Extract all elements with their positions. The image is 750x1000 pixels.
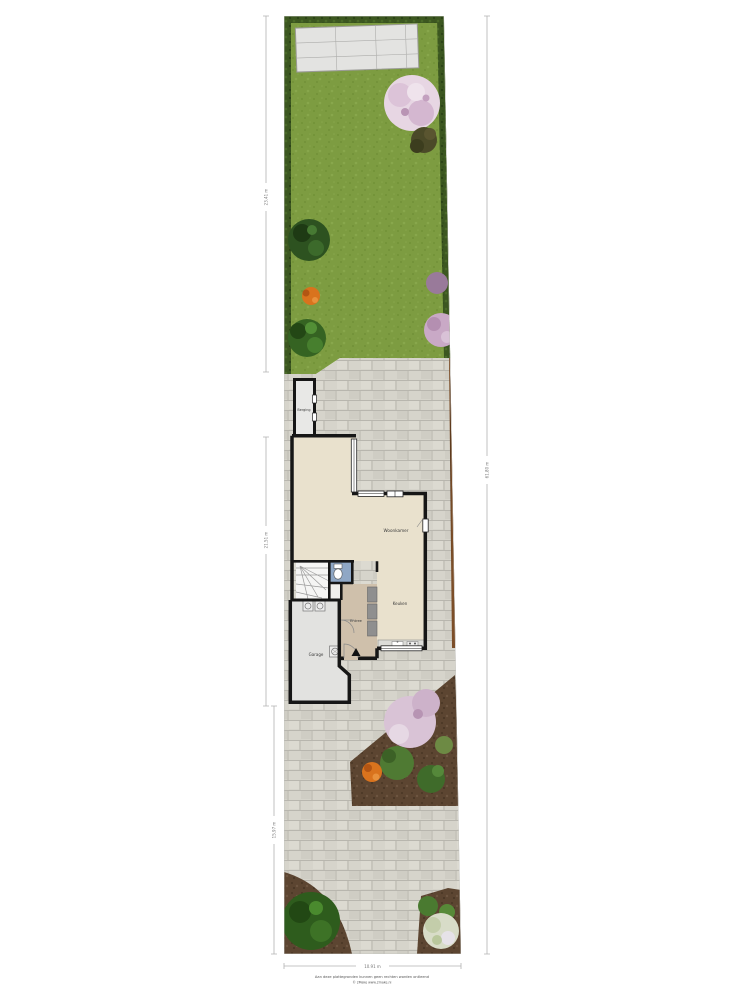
hedge-left [284,16,291,374]
kitchen-tall-units [368,587,378,636]
patio-tiles [295,24,418,72]
dimension-front-left: 15.97 m [270,706,278,954]
shrub-flowering-bottom [423,913,459,949]
window-notch-bottom [358,491,384,496]
dim-total-right-label: 61.80 m [485,462,490,479]
washer-icon [303,601,313,611]
entree-label: Entree [350,619,363,623]
hedge-top [284,16,444,23]
site-plan: Berging [0,0,750,1000]
dim-front-left-label: 15.97 m [272,822,277,839]
flowers-orange-bed [362,762,382,782]
dim-house-left-label: 21.51 m [264,532,269,549]
dimension-width-bottom: 10.91 m [284,962,461,970]
dimension-garden-left: 23.41 m [262,16,270,372]
garage-label: Garage [309,652,324,657]
toilet-icon [334,564,342,579]
woonkamer-label: Woonkamer [384,528,409,533]
tree-blossom-large [384,75,440,131]
dimension-house-left: 21.51 m [262,437,270,706]
berging-door2 [313,413,317,421]
dim-garden-left-label: 23.41 m [264,189,269,206]
footer-copyright: © 2Make www.2make.nl [353,981,392,985]
bush-bottom-left [282,892,340,950]
footer-disclaimer: Aan deze plattegronden kunnen geen recht… [315,975,429,979]
flowerbed-bottom-right [417,888,461,954]
window-band-left [351,439,356,492]
room-berging: Berging [294,380,317,442]
berging-door [313,395,317,403]
hall-cabinet-floor [329,584,341,600]
flowers-orange-top [302,287,320,305]
kitchen-window [381,646,422,651]
berging-label: Berging [297,408,310,412]
shrub-purple [426,272,448,294]
dryer-icon [315,601,325,611]
terrace-door [387,491,403,497]
bush-leafy-left [288,319,326,357]
dimension-total-right: 61.80 m [483,16,491,954]
conifer-bush [288,219,330,261]
dim-width-bottom-label: 10.91 m [364,964,381,969]
tree-pink-right [424,313,458,347]
keuken-label: Keuken [393,601,408,606]
